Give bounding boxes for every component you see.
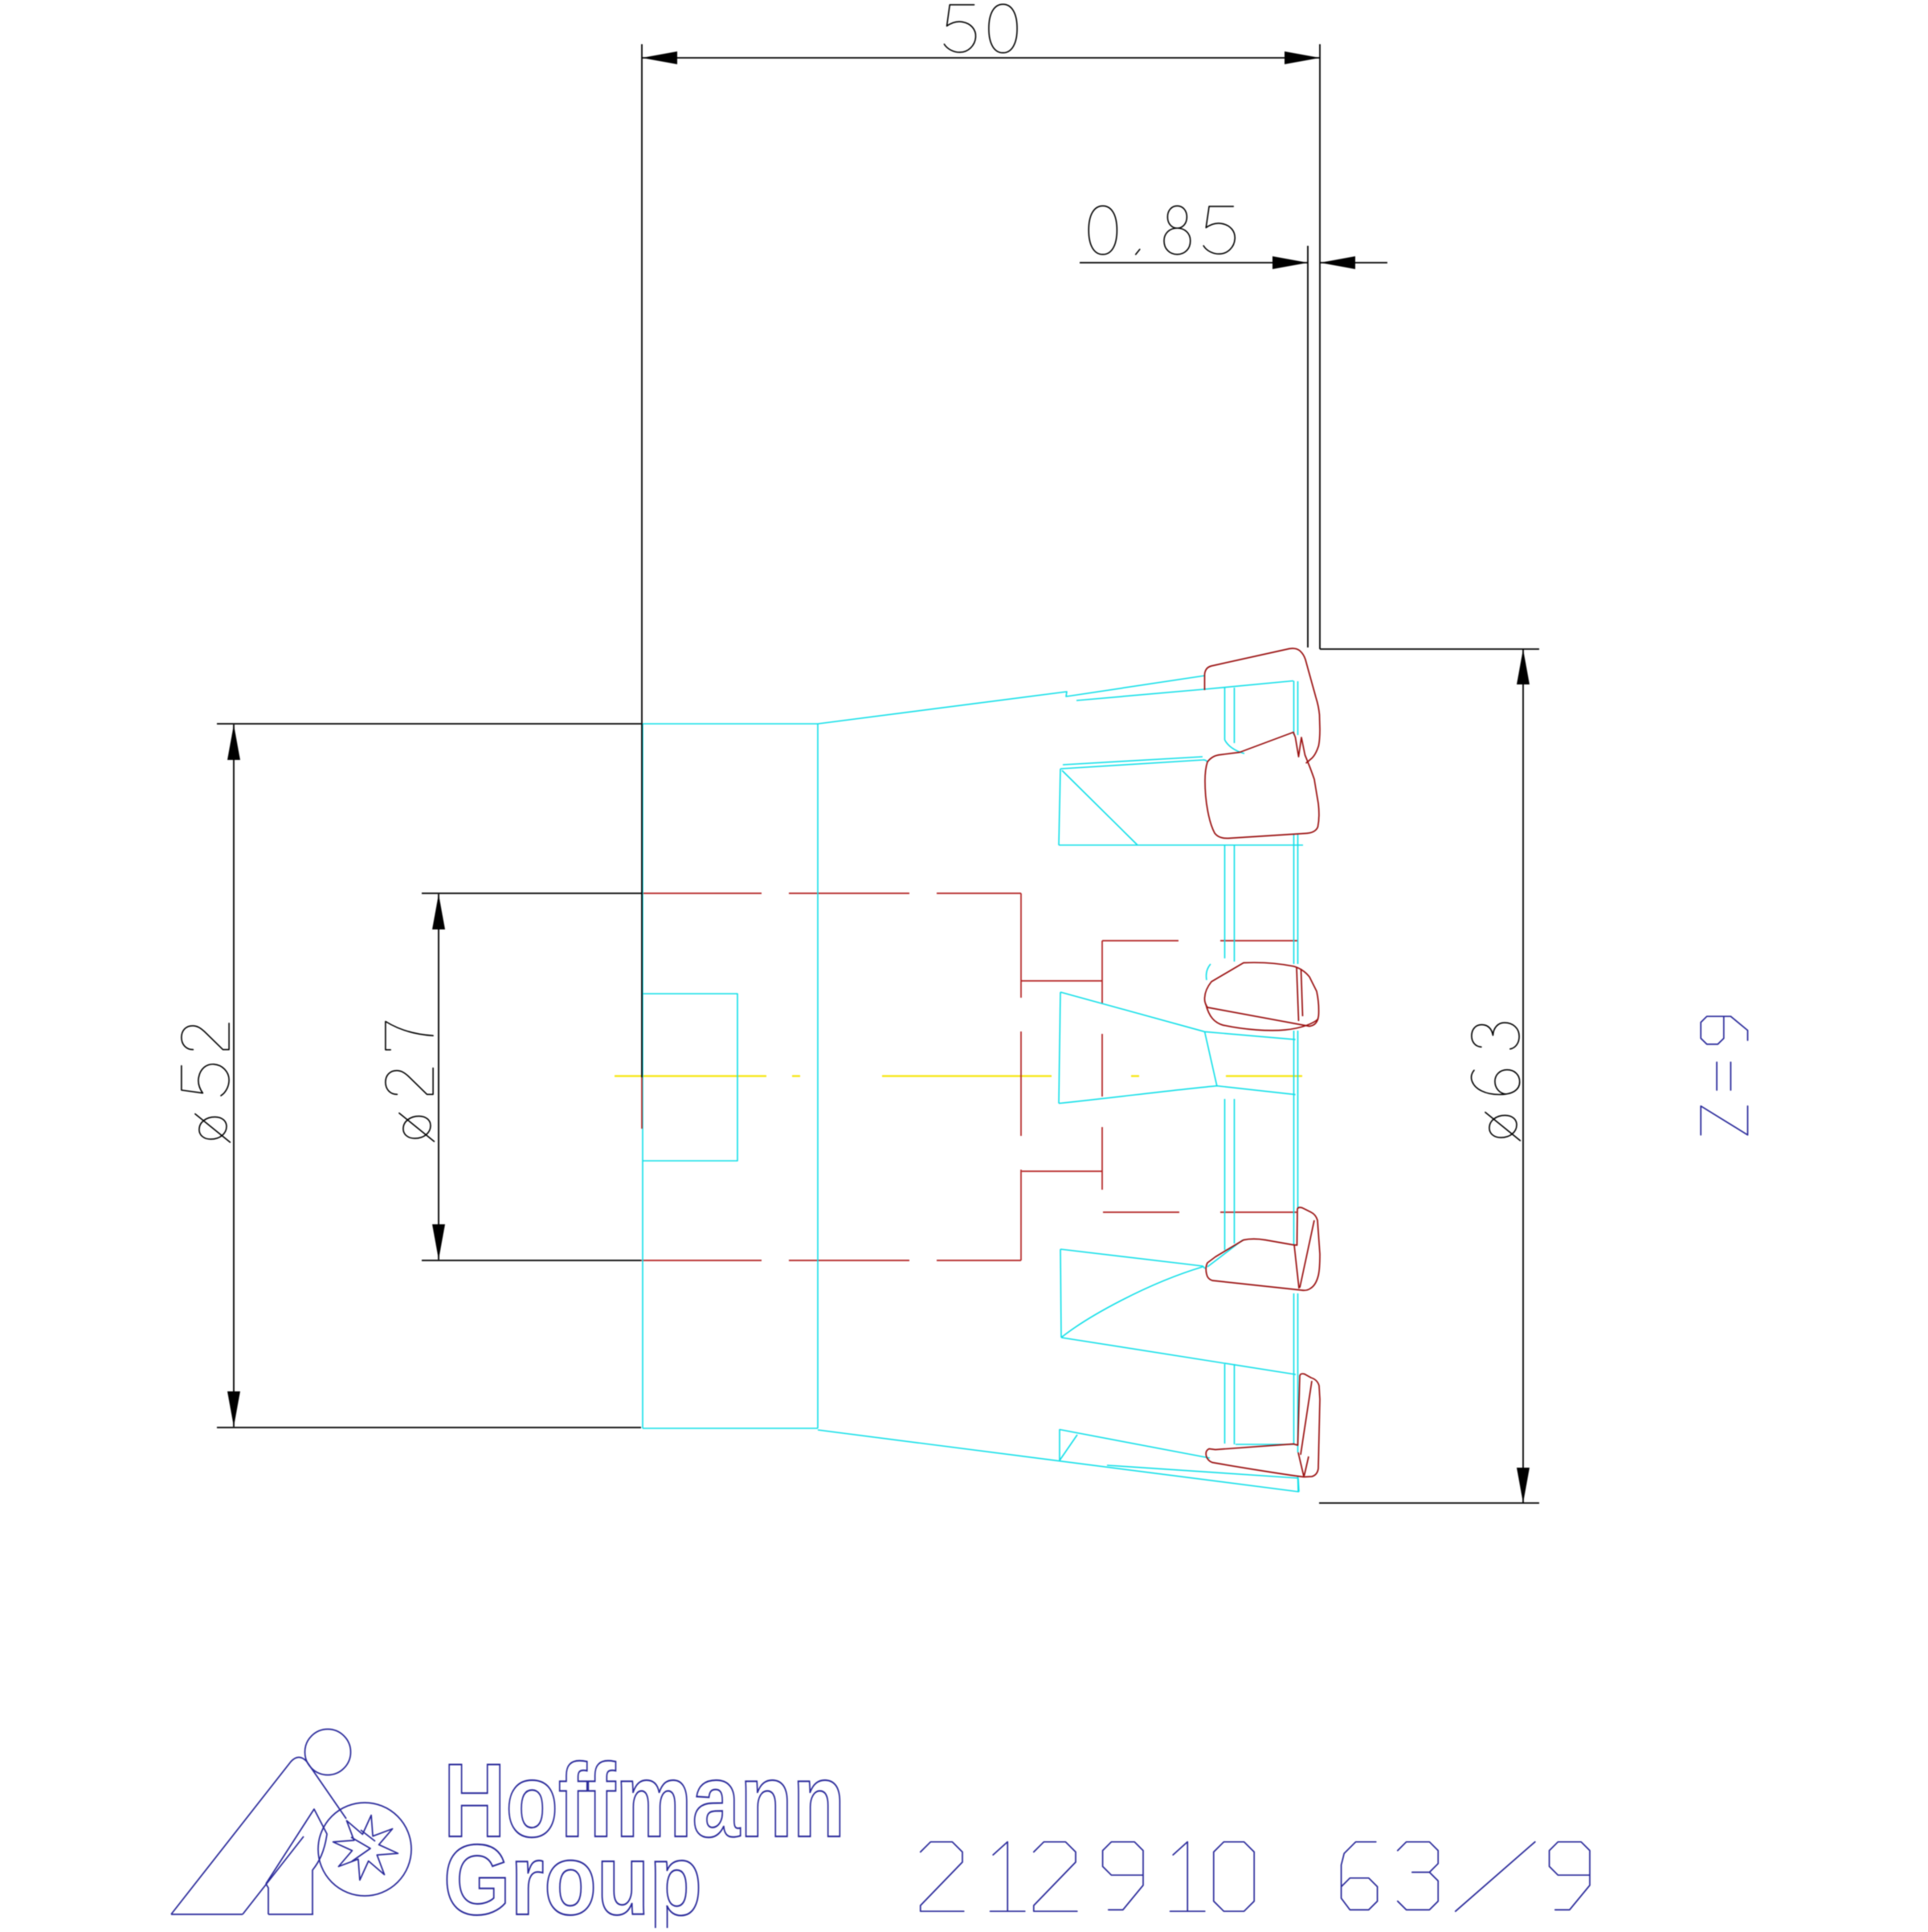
svg-text:Group: Group [443,1825,702,1928]
